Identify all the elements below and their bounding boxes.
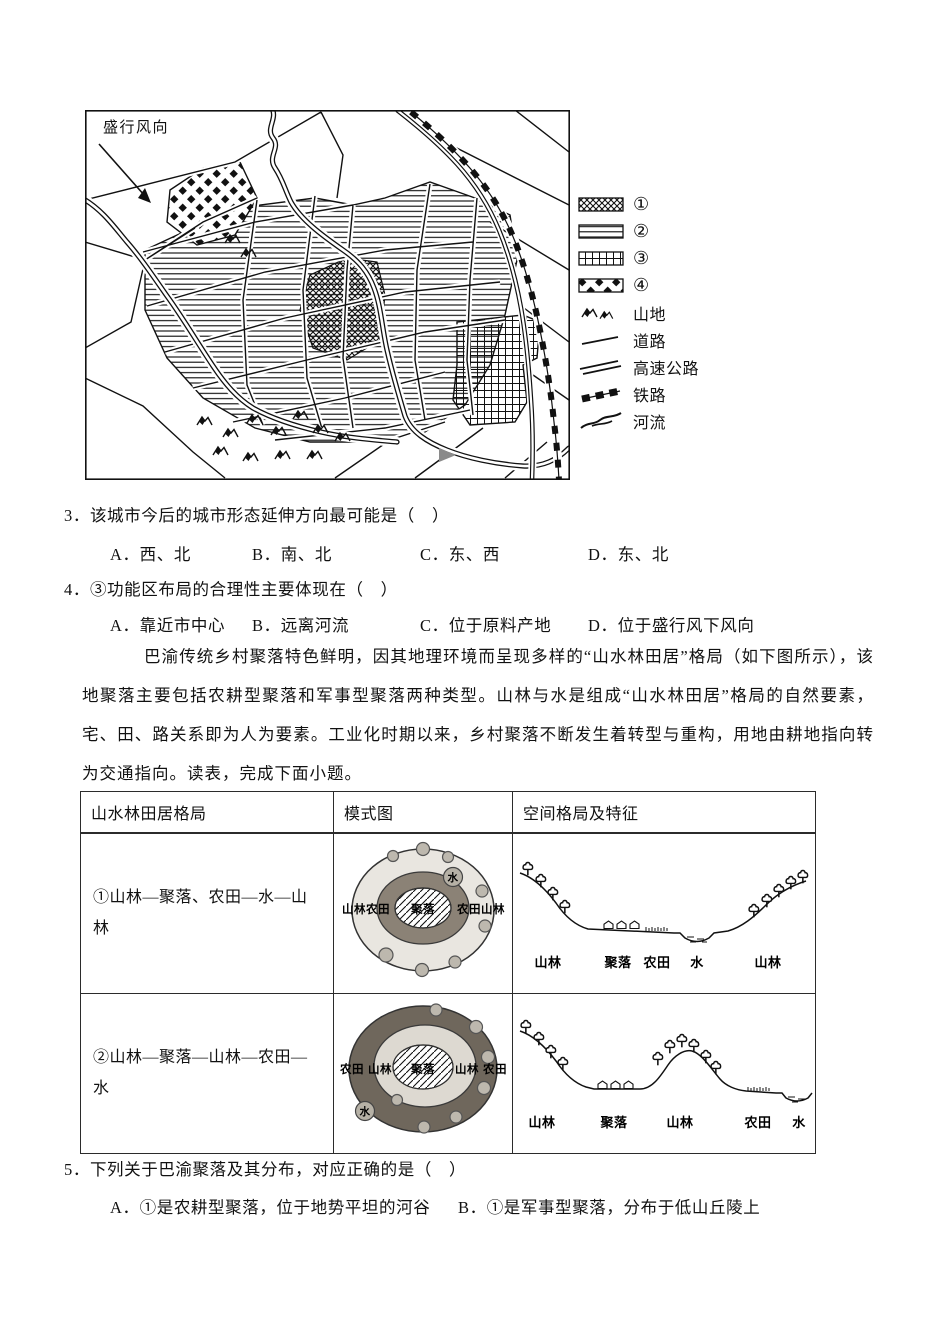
svg-text:农田: 农田 — [482, 1062, 507, 1076]
svg-text:山林: 山林 — [666, 1115, 693, 1130]
legend-item-4: ④ — [578, 272, 699, 299]
question-3-stem: 3．该城市今后的城市形态延伸方向最可能是（ ） — [64, 502, 449, 526]
settlement-pattern-table: 山水林田居格局 模式图 空间格局及特征 ①山林—聚落、农田—水—山林 水 山林农… — [80, 791, 816, 1154]
svg-text:农田: 农田 — [339, 1062, 364, 1076]
row2-water-label: 水 — [358, 1105, 370, 1118]
pattern-4-swatch-icon — [578, 278, 624, 293]
row1-pattern-text: ①山林—聚落、农田—水—山林 — [81, 833, 334, 994]
legend-item-3: ③ — [578, 245, 699, 272]
question-5-stem: 5．下列关于巴渝聚落及其分布，对应正确的是（ ） — [64, 1156, 466, 1180]
passage-bayu-settlements: 巴渝传统乡村聚落特色鲜明，因其地理环境而呈现多样的“山水林田居”格局（如下图所示… — [82, 637, 874, 793]
road-icon — [578, 330, 624, 350]
header-model: 模式图 — [334, 792, 513, 834]
question-3-option-a: A．西、北 — [110, 541, 191, 565]
railway-icon — [578, 384, 624, 404]
row2-farmland-marks — [748, 1087, 769, 1091]
legend-item-mountain: 山地 — [578, 299, 699, 326]
pattern-3-swatch-icon — [578, 251, 624, 266]
question-4-option-b: B．远离河流 — [252, 612, 349, 636]
row1-model-diagram: 水 山林农田 聚落 农田山林 — [336, 836, 511, 986]
svg-text:山林: 山林 — [455, 1062, 479, 1076]
row1-section-labels: 山林 聚落 农田 水 山林 — [534, 955, 781, 970]
question-4-stem: 4．③功能区布局的合理性主要体现在（ ） — [64, 576, 398, 600]
row1-farmland-marks — [646, 927, 667, 931]
row2-model-diagram: 水 农田 山林 聚落 山林 农田 — [336, 996, 511, 1146]
legend-item-river: 河流 — [578, 407, 699, 434]
legend-label: 道路 — [633, 328, 666, 352]
row1-section-diagram: 山林 聚落 农田 水 山林 — [514, 841, 814, 981]
row1-left-label: 山林农田 — [342, 902, 390, 916]
legend-item-highway: 高速公路 — [578, 353, 699, 380]
svg-text:农田: 农田 — [743, 1115, 771, 1130]
legend-item-railway: 铁路 — [578, 380, 699, 407]
svg-text:山林: 山林 — [534, 955, 561, 970]
question-4-option-c: C．位于原料产地 — [420, 612, 551, 636]
row1-right-label: 农田山林 — [456, 902, 505, 916]
legend-item-road: 道路 — [578, 326, 699, 353]
question-3-option-b: B．南、北 — [252, 541, 332, 565]
pattern-1-swatch-icon — [578, 197, 624, 212]
svg-text:山林: 山林 — [754, 955, 781, 970]
wind-direction-label: 盛行风向 — [103, 119, 169, 136]
svg-text:山林: 山林 — [368, 1062, 392, 1076]
legend-label: ③ — [633, 248, 650, 269]
table-row: ①山林—聚落、农田—水—山林 水 山林农田 聚落 农田山林 — [81, 833, 816, 994]
header-pattern: 山水林田居格局 — [81, 792, 334, 834]
legend-item-2: ② — [578, 218, 699, 245]
question-5-option-a: A．①是农耕型聚落，位于地势平坦的河谷 — [110, 1194, 430, 1218]
map-legend: ① ② ③ ④ 山地 道路 高速公路 铁路 河 — [578, 191, 699, 434]
question-4-option-d: D．位于盛行风下风向 — [588, 612, 754, 636]
legend-label: ① — [633, 194, 650, 215]
question-4-option-a: A．靠近市中心 — [110, 612, 225, 636]
row1-houses — [604, 921, 639, 929]
row1-section-cell: 山林 聚落 农田 水 山林 — [513, 833, 816, 994]
table-header-row: 山水林田居格局 模式图 空间格局及特征 — [81, 792, 816, 834]
row1-water-label: 水 — [446, 871, 458, 884]
row1-model-cell: 水 山林农田 聚落 农田山林 — [334, 833, 513, 994]
table-row: ②山林—聚落—山林—农田—水 水 农田 山林 聚落 山林 — [81, 994, 816, 1154]
question-4-options: A．靠近市中心 B．远离河流 C．位于原料产地 D．位于盛行风下风向 — [0, 612, 950, 636]
legend-label: 高速公路 — [633, 355, 699, 379]
legend-label: 山地 — [633, 301, 666, 325]
row2-section-cell: 山林 聚落 山林 农田 水 — [513, 994, 816, 1154]
river-icon — [578, 410, 624, 432]
svg-text:聚落: 聚落 — [599, 1115, 628, 1130]
legend-label: 河流 — [633, 409, 666, 433]
pattern-2-swatch-icon — [578, 224, 624, 239]
legend-item-1: ① — [578, 191, 699, 218]
city-map-figure: 盛行风向 — [85, 110, 570, 485]
question-3-option-c: C．东、西 — [420, 541, 500, 565]
svg-text:水: 水 — [690, 955, 704, 970]
row2-houses — [598, 1081, 633, 1089]
row2-trees — [521, 1020, 721, 1074]
question-5-option-b: B．①是军事型聚落，分布于低山丘陵上 — [458, 1194, 760, 1218]
svg-text:山林: 山林 — [528, 1115, 555, 1130]
question-3-options: A．西、北 B．南、北 C．东、西 D．东、北 — [0, 541, 950, 565]
row1-trees — [523, 862, 808, 917]
mountain-icon — [578, 303, 624, 323]
legend-label: ② — [633, 221, 650, 242]
svg-text:水: 水 — [792, 1115, 806, 1130]
highway-icon — [578, 357, 624, 377]
question-5-options: A．①是农耕型聚落，位于地势平坦的河谷 B．①是军事型聚落，分布于低山丘陵上 — [0, 1194, 950, 1218]
header-spatial: 空间格局及特征 — [513, 792, 816, 834]
svg-text:聚落: 聚落 — [410, 1062, 435, 1076]
legend-label: 铁路 — [633, 382, 666, 406]
row1-center-label: 聚落 — [410, 902, 435, 916]
row2-section-diagram: 山林 聚落 山林 农田 水 — [514, 1001, 814, 1141]
legend-label: ④ — [633, 275, 650, 296]
svg-text:农田: 农田 — [642, 955, 670, 970]
question-3-option-d: D．东、北 — [588, 541, 669, 565]
city-map: 盛行风向 — [85, 110, 570, 480]
row2-pattern-text: ②山林—聚落—山林—农田—水 — [81, 994, 334, 1154]
row2-model-cell: 水 农田 山林 聚落 山林 农田 — [334, 994, 513, 1154]
svg-text:聚落: 聚落 — [603, 955, 632, 970]
row2-section-labels: 山林 聚落 山林 农田 水 — [528, 1115, 806, 1130]
